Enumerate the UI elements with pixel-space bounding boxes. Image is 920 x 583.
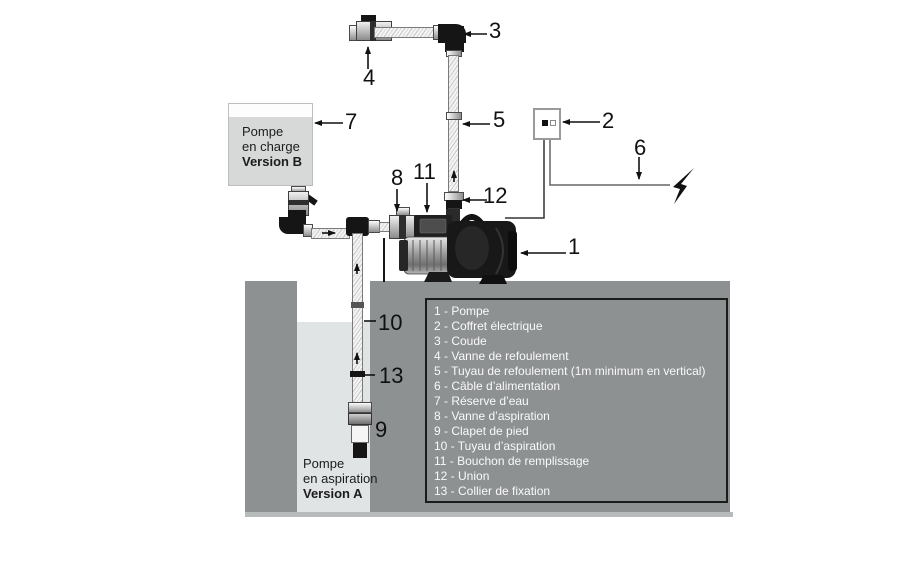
power-supply-lightning-icon [673,168,694,204]
pipe-coupling [446,112,462,120]
well-caption-line: Pompe [303,456,377,471]
elbow-fitting [445,26,464,52]
callout-7-label: 7 [345,111,357,133]
callout-8-label: 8 [391,167,403,189]
pump-outlet-stub [448,208,460,217]
pump-motor [404,237,478,274]
suction-pipe-vertical [352,233,363,408]
callout-9-label: 9 [375,419,387,441]
legend-item: 4 - Vanne de refoulement [434,349,726,364]
pump-installation-diagram: 1 - Pompe 2 - Coffret électrique 3 - Cou… [0,0,920,583]
tank-valve-band [288,200,309,205]
pump-handle [459,217,484,229]
legend-item: 8 - Vanne d’aspiration [434,409,726,424]
elbow-fitting [279,217,305,234]
electrical-box [533,108,561,140]
indicator-dot-icon [542,120,548,126]
callout-10-label: 10 [378,312,402,334]
ground-bottom-edge [245,512,733,517]
tank-feed-pipe [311,228,350,239]
well-caption: Pompe en aspiration Version A [303,456,377,501]
callout-5-label: 5 [493,109,505,131]
tank-caption-version: Version B [242,154,302,169]
indicator-square-icon [550,120,556,126]
power-cable-to-pump [505,140,544,218]
hose-clamp [350,371,365,377]
well-caption-version: Version A [303,486,377,501]
ground-edge-line [383,238,385,282]
ground-left-block [245,281,297,512]
legend-item: 2 - Coffret électrique [434,319,726,334]
callout-6-label: 6 [634,137,646,159]
foot-valve-collar [348,413,372,425]
foot-valve-body [351,425,369,443]
pump-illustration [399,209,517,284]
legend-item: 6 - Câble d’alimentation [434,379,726,394]
legend-item: 13 - Collier de fixation [434,484,726,499]
tank-caption-line: Pompe [242,124,302,139]
tank-caption-line: en charge [242,139,302,154]
legend-item: 3 - Coude [434,334,726,349]
tank-top-band [229,104,312,117]
foot-valve-nut [348,402,372,413]
parts-legend: 1 - Pompe 2 - Coffret électrique 3 - Cou… [425,298,728,503]
legend-item: 1 - Pompe [434,304,726,319]
legend-item: 11 - Bouchon de remplissage [434,454,726,469]
callout-2-label: 2 [602,110,614,132]
discharge-pipe-vertical [448,55,459,192]
pump-casing [447,221,516,278]
callout-11-label: 11 [413,161,436,183]
tank-caption: Pompe en charge Version B [242,124,302,169]
callout-13-label: 13 [379,365,403,387]
pump-terminal-box [414,215,452,241]
callout-3-label: 3 [489,20,501,42]
callout-4-label: 4 [363,67,375,89]
legend-item: 5 - Tuyau de refoulement (1m minimum en … [434,364,726,379]
legend-item: 7 - Réserve d’eau [434,394,726,409]
power-cable-to-supply [550,140,670,185]
legend-item: 12 - Union [434,469,726,484]
pipe-coupling [351,302,364,308]
callout-12-label: 12 [483,185,507,207]
well-caption-line: en aspiration [303,471,377,486]
legend-item: 9 - Clapet de pied [434,424,726,439]
callout-1-label: 1 [568,236,580,258]
suction-valve-band [399,215,406,239]
legend-item: 10 - Tuyau d’aspiration [434,439,726,454]
